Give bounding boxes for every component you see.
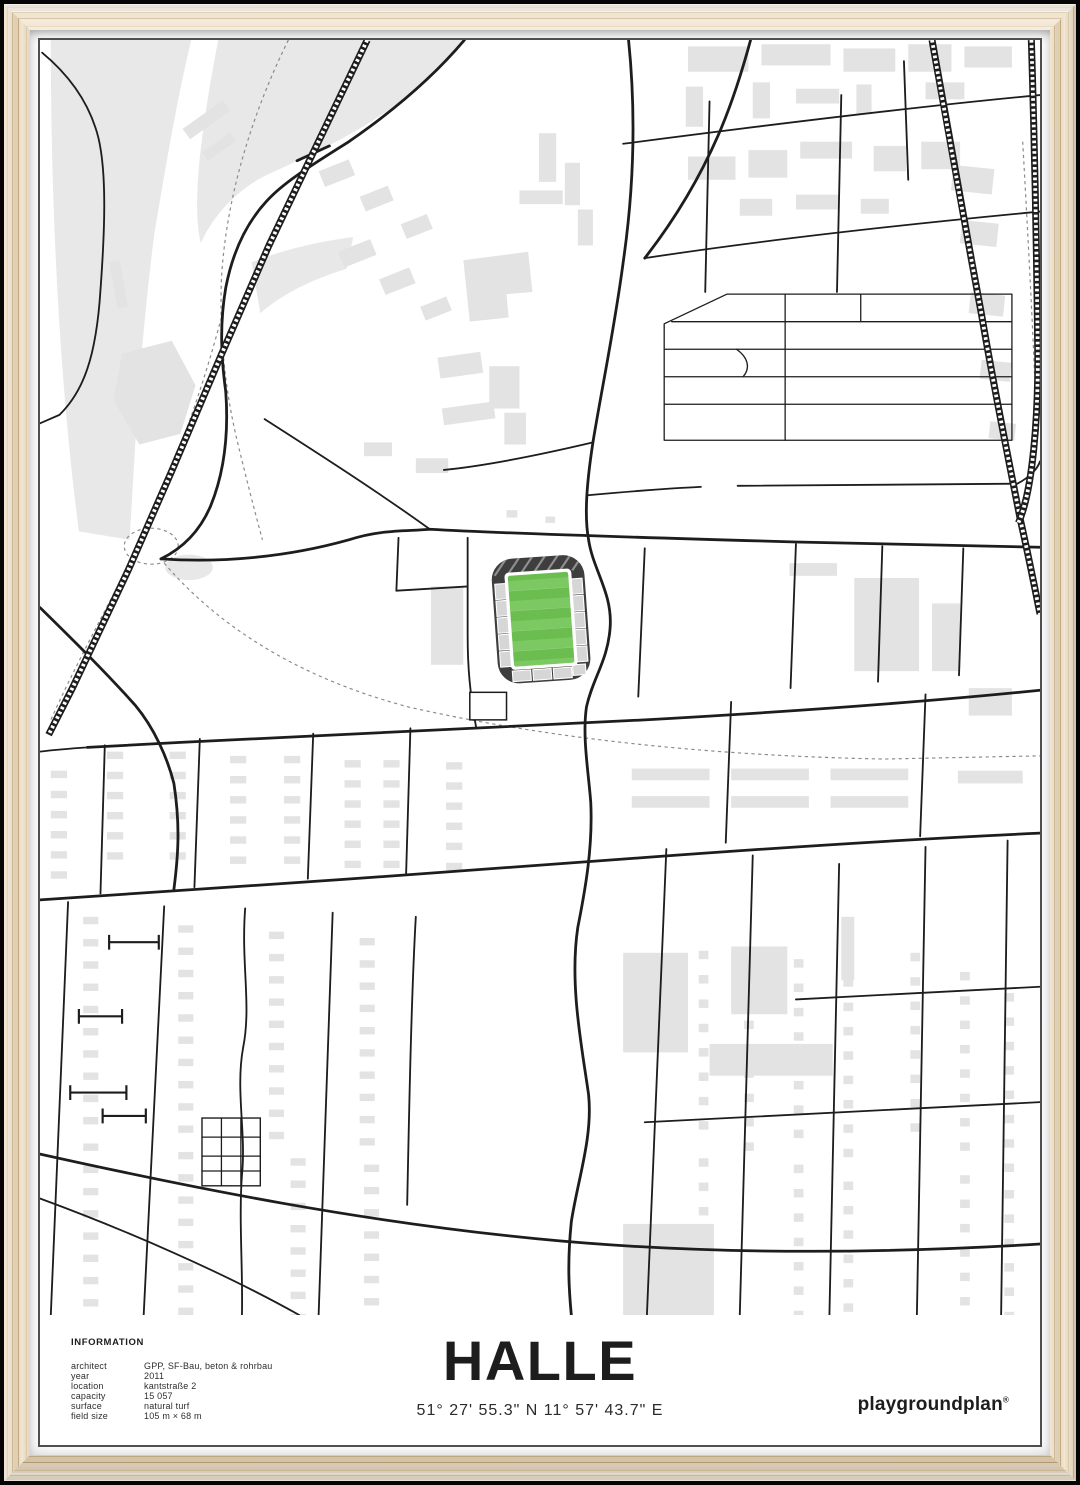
allotment-strips	[664, 294, 1012, 440]
registered-mark: ®	[1003, 1396, 1009, 1405]
street-map	[40, 40, 1040, 1315]
poster-title: HALLE	[40, 1333, 1040, 1389]
park-area	[51, 40, 467, 580]
poster: INFORMATION architect GPP, SF-Bau, beton…	[38, 38, 1042, 1447]
stadium-pitch	[508, 572, 575, 667]
poster-footer: INFORMATION architect GPP, SF-Bau, beton…	[40, 1315, 1040, 1445]
brand-name: playgroundplan	[858, 1394, 1003, 1415]
stadium	[490, 551, 594, 684]
railway-right	[932, 40, 1040, 614]
map-svg	[40, 40, 1040, 1315]
plot-grid	[202, 1118, 260, 1186]
brand-logo: playgroundplan®	[858, 1394, 1009, 1416]
framed-poster-photo: INFORMATION architect GPP, SF-Bau, beton…	[0, 0, 1080, 1485]
